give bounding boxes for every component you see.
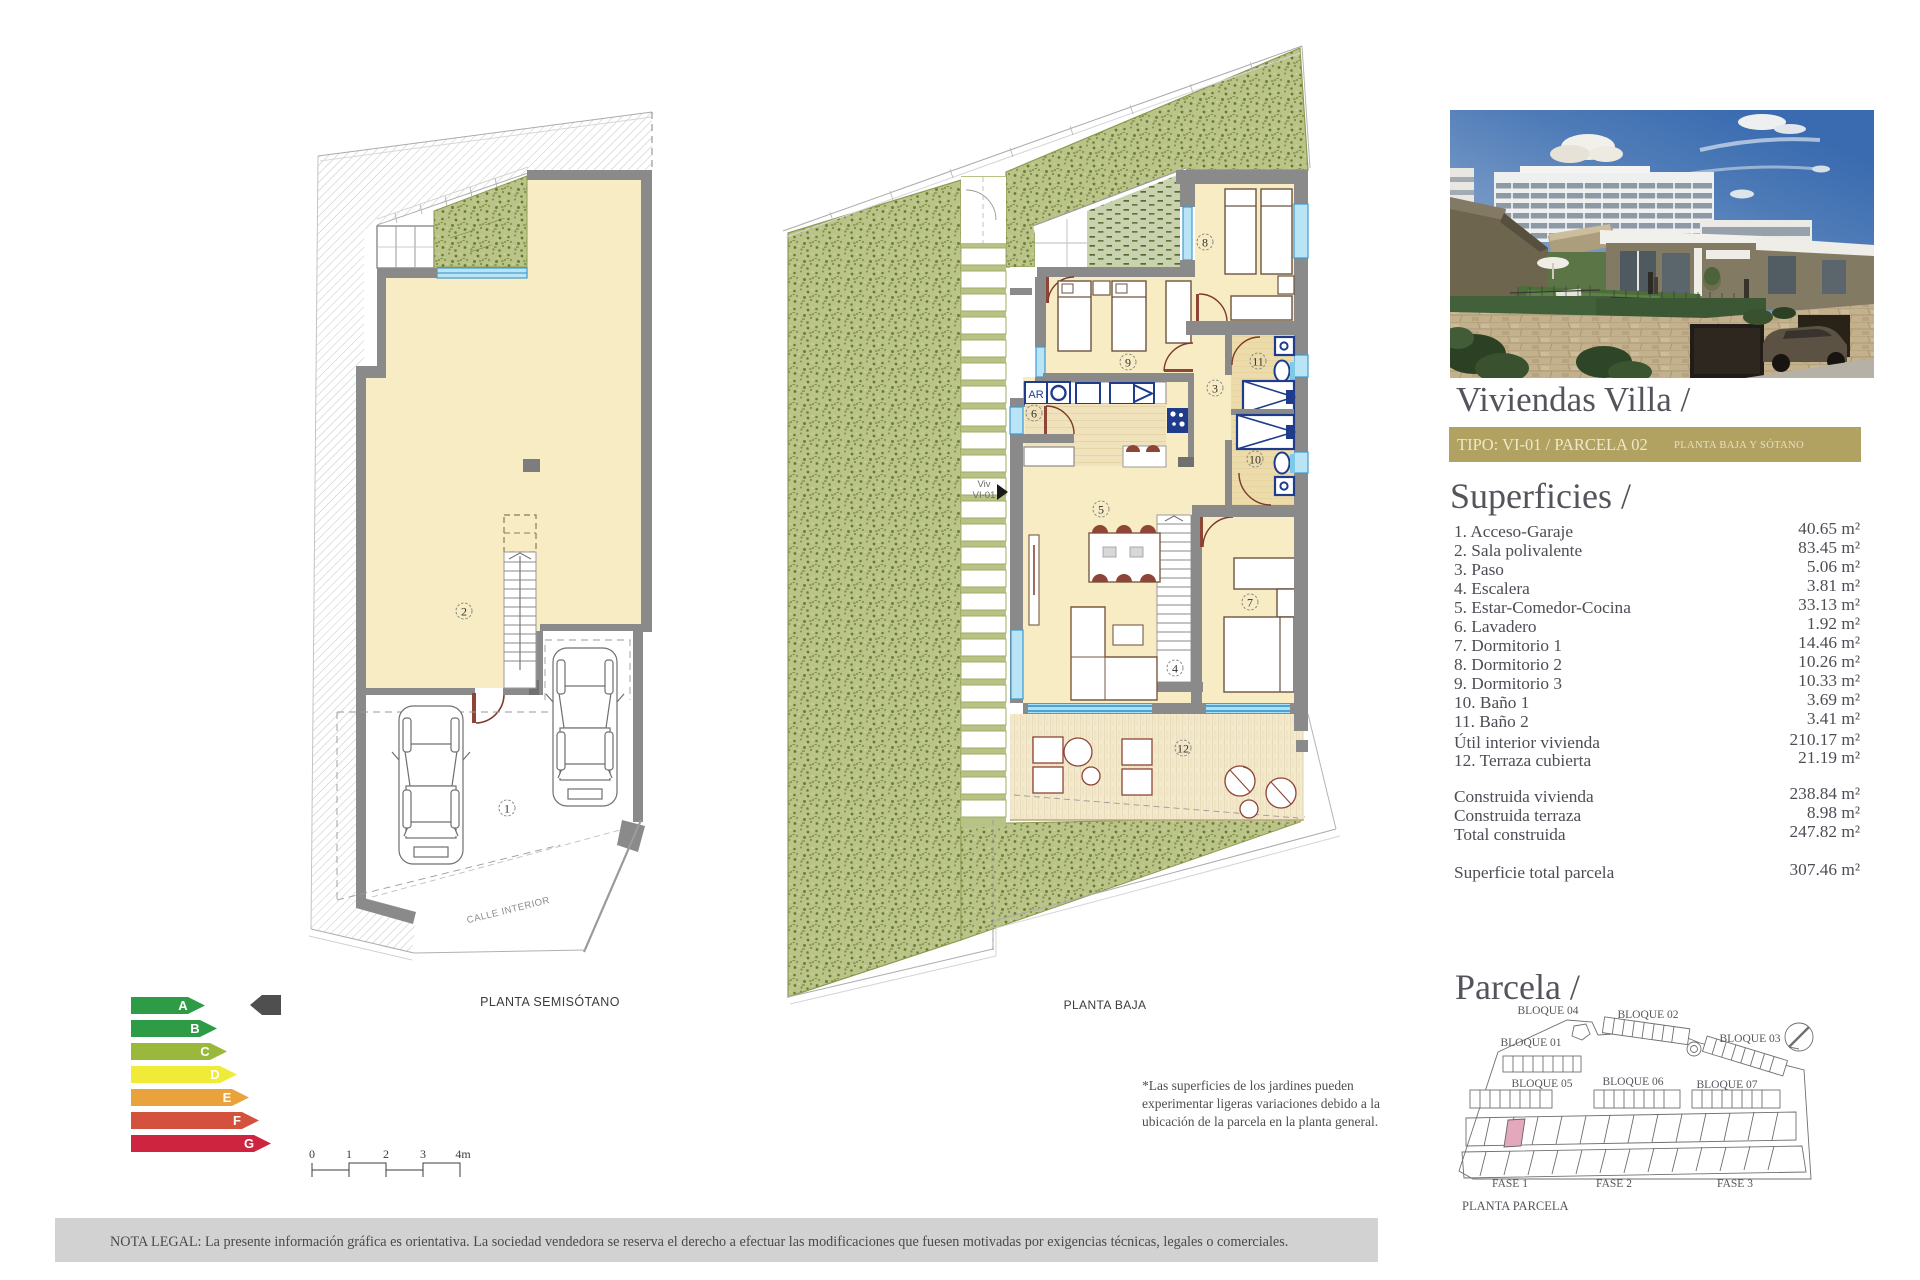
svg-text:BLOQUE 06: BLOQUE 06 [1602,1076,1663,1088]
svg-text:VI-01: VI-01 [973,490,996,501]
svg-text:Útil interior vivienda: Útil interior vivienda [1454,733,1600,752]
svg-text:TIPO: VI-01 / PARCELA 02: TIPO: VI-01 / PARCELA 02 [1457,435,1648,454]
svg-text:247.82 m²: 247.82 m² [1790,822,1860,841]
svg-text:0: 0 [309,1147,315,1161]
svg-text:3. Paso: 3. Paso [1454,560,1504,579]
svg-text:Superficies /: Superficies / [1450,476,1631,516]
svg-text:BLOQUE 03: BLOQUE 03 [1719,1033,1780,1045]
svg-text:4m: 4m [455,1147,471,1161]
svg-text:3.81 m²: 3.81 m² [1807,576,1860,595]
svg-text:2: 2 [461,605,467,619]
svg-text:5. Estar-Comedor-Cocina: 5. Estar-Comedor-Cocina [1454,598,1631,617]
svg-text:9. Dormitorio 3: 9. Dormitorio 3 [1454,674,1562,693]
svg-text:2: 2 [383,1147,389,1161]
svg-text:AR: AR [1028,389,1043,401]
svg-text:ubicación de la parcela en la: ubicación de la parcela en la planta gen… [1142,1114,1378,1129]
svg-text:PLANTA SEMISÓTANO: PLANTA SEMISÓTANO [480,994,620,1009]
svg-text:238.84 m²: 238.84 m² [1790,784,1860,803]
svg-text:4: 4 [1172,662,1178,676]
svg-text:9: 9 [1125,356,1131,370]
svg-text:BLOQUE 04: BLOQUE 04 [1517,1005,1578,1017]
svg-text:12. Terraza cubierta: 12. Terraza cubierta [1454,751,1591,770]
svg-text:Total construida: Total construida [1454,825,1566,844]
svg-text:A: A [178,998,188,1013]
svg-text:8. Dormitorio 2: 8. Dormitorio 2 [1454,655,1562,674]
svg-text:Viv: Viv [977,479,990,490]
svg-text:83.45 m²: 83.45 m² [1798,538,1860,557]
svg-text:11. Baño 2: 11. Baño 2 [1454,712,1529,731]
svg-text:5.06 m²: 5.06 m² [1807,557,1860,576]
svg-text:33.13 m²: 33.13 m² [1798,595,1860,614]
svg-text:PLANTA BAJA: PLANTA BAJA [1064,998,1147,1012]
svg-text:BLOQUE 01: BLOQUE 01 [1500,1037,1561,1049]
svg-text:7. Dormitorio 1: 7. Dormitorio 1 [1454,636,1562,655]
svg-text:3: 3 [1212,382,1218,396]
svg-text:experimentar ligeras variacion: experimentar ligeras variaciones debido … [1142,1096,1380,1111]
svg-text:Construida vivienda: Construida vivienda [1454,787,1594,806]
svg-text:FASE 1: FASE 1 [1492,1178,1528,1190]
svg-text:14.46 m²: 14.46 m² [1798,633,1860,652]
svg-text:12: 12 [1177,742,1189,756]
svg-text:2. Sala polivalente: 2. Sala polivalente [1454,541,1582,560]
svg-text:FASE 2: FASE 2 [1596,1178,1632,1190]
svg-text:3.69 m²: 3.69 m² [1807,690,1860,709]
svg-text:BLOQUE 07: BLOQUE 07 [1696,1079,1757,1091]
svg-text:G: G [244,1136,254,1151]
svg-text:Superficie total parcela: Superficie total parcela [1454,863,1615,882]
svg-text:4. Escalera: 4. Escalera [1454,579,1530,598]
svg-text:210.17 m²: 210.17 m² [1790,730,1860,749]
svg-text:1: 1 [504,802,510,816]
svg-text:Construida terraza: Construida terraza [1454,806,1581,825]
svg-text:7: 7 [1247,596,1253,610]
svg-text:10: 10 [1249,453,1261,467]
svg-text:8: 8 [1202,236,1208,250]
svg-text:21.19 m²: 21.19 m² [1798,748,1860,767]
svg-text:C: C [200,1044,210,1059]
svg-text:1: 1 [346,1147,352,1161]
svg-text:6: 6 [1031,407,1037,421]
svg-text:307.46 m²: 307.46 m² [1790,860,1860,879]
svg-text:10. Baño 1: 10. Baño 1 [1454,693,1529,712]
svg-text:E: E [223,1090,232,1105]
svg-text:6. Lavadero: 6. Lavadero [1454,617,1537,636]
svg-text:3.41 m²: 3.41 m² [1807,709,1860,728]
svg-text:BLOQUE 05: BLOQUE 05 [1511,1078,1572,1090]
svg-text:D: D [210,1067,219,1082]
svg-text:Viviendas Villa /: Viviendas Villa / [1456,380,1691,419]
svg-text:F: F [233,1113,241,1128]
svg-text:11: 11 [1252,355,1264,369]
svg-text:FASE 3: FASE 3 [1717,1178,1753,1190]
svg-text:PLANTA PARCELA: PLANTA PARCELA [1462,1199,1569,1213]
svg-text:PLANTA BAJA Y SÓTANO: PLANTA BAJA Y SÓTANO [1674,439,1804,451]
svg-text:40.65 m²: 40.65 m² [1798,519,1860,538]
svg-text:1.92 m²: 1.92 m² [1807,614,1860,633]
svg-text:10.33 m²: 10.33 m² [1798,671,1860,690]
svg-text:B: B [190,1021,199,1036]
svg-text:*Las superficies de los jardin: *Las superficies de los jardines pueden [1142,1078,1354,1093]
svg-text:8.98 m²: 8.98 m² [1807,803,1860,822]
svg-text:BLOQUE 02: BLOQUE 02 [1617,1009,1678,1021]
svg-text:5: 5 [1098,503,1104,517]
svg-text:1. Acceso-Garaje: 1. Acceso-Garaje [1454,522,1573,541]
svg-text:10.26 m²: 10.26 m² [1798,652,1860,671]
svg-text:NOTA LEGAL: La presente inform: NOTA LEGAL: La presente información gráf… [110,1234,1288,1250]
svg-text:Parcela /: Parcela / [1455,967,1580,1007]
svg-text:3: 3 [420,1147,426,1161]
